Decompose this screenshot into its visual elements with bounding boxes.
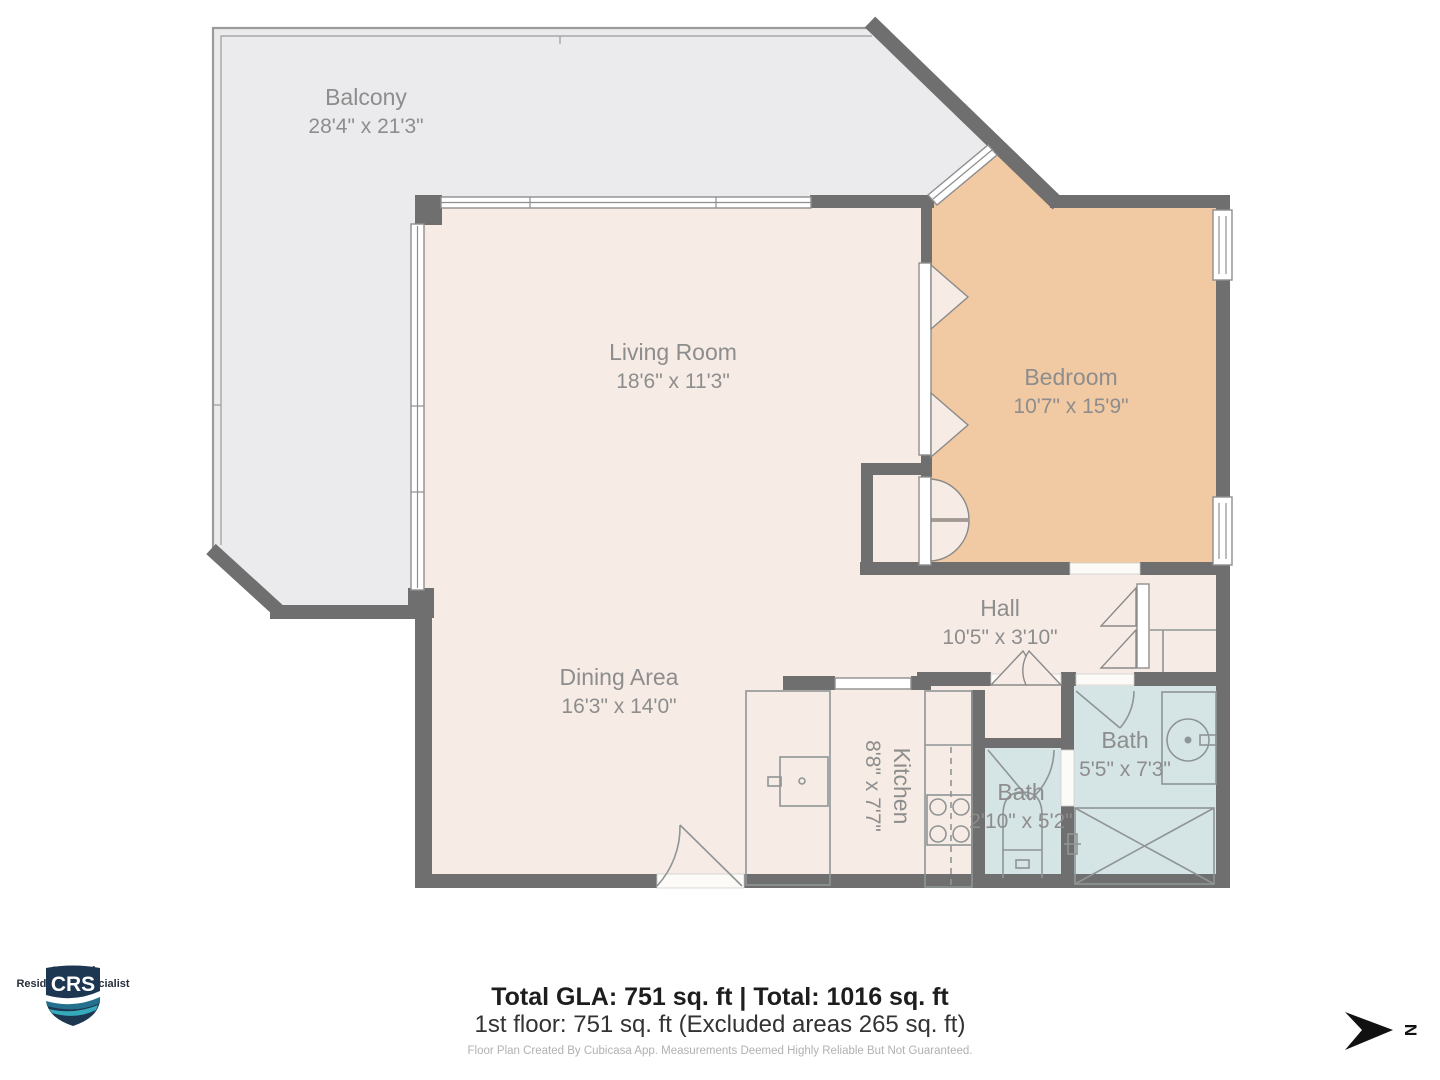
room-dims: 5'5" x 7'3" xyxy=(1079,758,1171,781)
room-dims: 16'3" x 14'0" xyxy=(561,695,676,718)
bath-large-floor xyxy=(1070,686,1220,886)
bedroom-east-window-2 xyxy=(1213,497,1232,565)
floor-line: 1st floor: 751 sq. ft (Excluded areas 26… xyxy=(0,1011,1440,1039)
hall-closet-track xyxy=(1137,584,1149,668)
room-dims: 10'5" x 3'10" xyxy=(942,626,1057,649)
room-name: Dining Area xyxy=(560,664,679,690)
room-dims: 28'4" x 21'3" xyxy=(308,115,423,138)
floor-plan-page: Balcony28'4" x 21'3"Living Room18'6" x 1… xyxy=(0,0,1440,1080)
room-dims: 2'10" x 5'2" xyxy=(969,810,1073,833)
crs-acronym: CRS xyxy=(51,973,95,996)
bedroom-closet-track xyxy=(919,477,931,565)
room-name: Bedroom xyxy=(1024,364,1117,390)
room-name: Bath xyxy=(997,779,1044,805)
kitchen-passthrough xyxy=(835,678,911,689)
room-name: Balcony xyxy=(325,84,407,110)
room-dims: 18'6" x 11'3" xyxy=(616,370,730,393)
bedroom-slider-track xyxy=(919,263,931,455)
bedroom-doorway xyxy=(1070,563,1140,574)
north-label: N xyxy=(1401,1024,1420,1036)
room-name: Bath xyxy=(1101,727,1148,753)
floor-plan-drawing: Balcony28'4" x 21'3"Living Room18'6" x 1… xyxy=(0,0,1440,1080)
bedroom-east-window-1 xyxy=(1213,210,1232,280)
room-name: Kitchen xyxy=(889,748,915,825)
room-name: Hall xyxy=(980,595,1020,621)
room-dims: 10'7" x 15'9" xyxy=(1013,395,1128,418)
disclaimer-line: Floor Plan Created By Cubicasa App. Meas… xyxy=(0,1045,1440,1057)
north-arrow-icon: N xyxy=(1335,1000,1435,1060)
room-dims: 8'8" x 7'7" xyxy=(861,740,884,832)
totals-line: Total GLA: 751 sq. ft | Total: 1016 sq. … xyxy=(0,983,1440,1012)
crs-logo: CRS Certified Residential Specialist xyxy=(14,965,132,991)
bedroom-floor xyxy=(929,149,1222,570)
room-name: Living Room xyxy=(609,339,737,365)
crs-shield-icon: CRS xyxy=(14,965,132,1027)
